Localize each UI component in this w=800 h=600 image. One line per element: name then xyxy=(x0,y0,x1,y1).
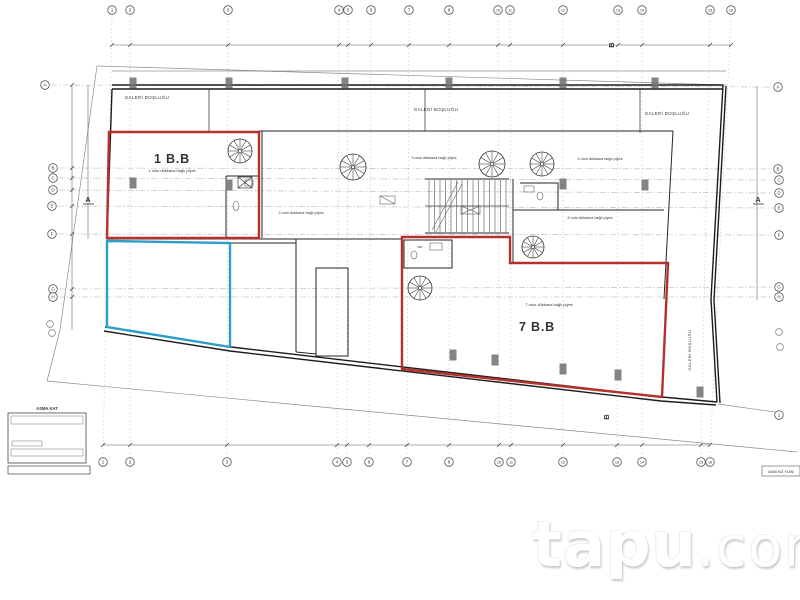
grid-bubble-label: E xyxy=(777,206,780,211)
grid-bubble-label: 2 xyxy=(129,460,132,465)
grid-bubble-label: 3 xyxy=(227,8,230,13)
column xyxy=(642,180,649,191)
room5-label: 5 nolu dükkana bağlı piyes xyxy=(568,216,613,220)
title-block-heading: ASMA KAT xyxy=(36,406,58,411)
grid-bubble xyxy=(776,329,783,336)
grid-bubble-label: 1 xyxy=(102,460,105,465)
grid-bubble-label: 13 xyxy=(616,8,620,13)
grid-bubble-label: 16 xyxy=(729,8,733,13)
column xyxy=(652,78,659,89)
grid-line-vertical xyxy=(369,16,371,454)
grid-bubble-label: F xyxy=(778,233,781,238)
spiral-stair-icon xyxy=(228,139,252,163)
column xyxy=(226,180,233,191)
grid-bubble-label: 5 xyxy=(346,460,349,465)
grid-bubble xyxy=(47,321,54,328)
spiral-stair-icon xyxy=(479,151,505,177)
section-marker-a-left: A xyxy=(85,195,91,204)
grid-bubble-label: 6 xyxy=(370,8,373,13)
grid-bubble-label: G xyxy=(777,285,781,290)
grid-line-horizontal xyxy=(58,206,773,208)
unit-7bb-sublabel: 7 nolu dükkana bağlı piyes xyxy=(525,302,572,307)
grid-bubble xyxy=(777,344,784,351)
spiral-stair-icon xyxy=(408,276,432,300)
column xyxy=(450,350,457,361)
grid-bubble-label: 15 xyxy=(699,460,703,465)
unit-1bb-sublabel: 1 nolu dükkana bağlı piyes xyxy=(148,168,195,173)
grid-line-vertical xyxy=(510,16,511,454)
section-markers: A A B B xyxy=(83,42,764,420)
column xyxy=(446,78,453,89)
spiral-stair-icon xyxy=(340,154,366,180)
column xyxy=(342,78,349,89)
interior-walls xyxy=(107,89,673,356)
grid-line-vertical xyxy=(498,16,499,454)
grid-bubble-label: B xyxy=(51,166,54,171)
grid-line-vertical xyxy=(337,16,339,454)
grid-bubble-label: 1 xyxy=(111,8,114,13)
room2-label: 2 nolu dükkana bağlı piyes xyxy=(279,211,324,215)
grid-bubble-label: B xyxy=(776,167,779,172)
grid-bubble-label: 1 xyxy=(778,413,781,418)
grid-line-vertical xyxy=(407,16,409,454)
dimension-lines xyxy=(72,45,757,445)
column xyxy=(492,355,499,366)
grid-bubble-label: F xyxy=(51,232,54,237)
grid-bubble-label: 16 xyxy=(708,460,712,465)
column xyxy=(130,178,137,189)
grid-bubble-label: 7 xyxy=(408,8,411,13)
gallery-void-label-center: GALERİ BOŞLUĞU xyxy=(414,107,458,112)
column xyxy=(560,179,567,190)
grid-bubble-label: 8 xyxy=(448,8,451,13)
grid-line-horizontal xyxy=(59,190,773,193)
grid-bubble-label: 3 xyxy=(226,460,229,465)
wc-label: wc xyxy=(418,244,423,249)
spiral-stair-icon xyxy=(530,152,554,176)
grid-bubble xyxy=(49,330,56,337)
unit-7bb-outline xyxy=(402,237,668,397)
parcel-boundary xyxy=(47,66,797,452)
column xyxy=(560,364,567,375)
grid-bubble-label: H xyxy=(777,295,780,300)
grid-bubble-label: 12 xyxy=(561,8,565,13)
gallery-void-label-vertical: GALERİ BOŞLUĞU xyxy=(687,330,692,371)
room4-label: 4 nolu dükkana bağlı piyes xyxy=(578,157,623,161)
grid-bubble-label: 11 xyxy=(508,8,512,13)
grid-bubble-label: 15 xyxy=(708,8,712,13)
gallery-void-label-right: GALERİ BOŞLUĞU xyxy=(645,111,689,116)
grid-lines xyxy=(51,16,773,454)
unit-7bb-label: 7 B.B xyxy=(519,320,555,334)
grid-bubble-label: 4 xyxy=(336,460,339,465)
watermark-main: tapu xyxy=(532,508,697,581)
watermark-suffix: .com xyxy=(697,515,800,580)
tapu-watermark: tapu.com xyxy=(532,508,800,581)
title-block: ASMA KAT xyxy=(8,406,90,474)
grid-line-horizontal xyxy=(59,178,773,180)
drawing-name-label: ASMA KAT PLANI xyxy=(768,470,794,474)
grid-bubble-label: 4 xyxy=(338,8,341,13)
grid-bubble-label: E xyxy=(50,204,53,209)
column xyxy=(560,78,567,89)
section-marker-b-top: B xyxy=(607,42,616,48)
unit-1bb-label: 1 B.B xyxy=(154,152,190,166)
blue-region-outline xyxy=(107,241,230,347)
section-marker-b-bottom: B xyxy=(602,414,611,420)
grid-bubble-label: G xyxy=(51,287,55,292)
grid-bubble-label: 8 xyxy=(448,460,451,465)
grid-bubble-label: 7 xyxy=(406,460,409,465)
gallery-void-label-left: GALERİ BOŞLUĞU xyxy=(125,95,169,100)
drawing-name-box: ASMA KAT PLANI xyxy=(762,466,800,476)
grid-bubble-label: 12 xyxy=(561,460,565,465)
column xyxy=(615,370,622,381)
column xyxy=(697,387,704,398)
grid-bubble-label: H xyxy=(51,295,54,300)
grid-bubble-label: 6 xyxy=(368,460,371,465)
column xyxy=(226,78,233,89)
grid-line-horizontal xyxy=(58,234,773,235)
grid-bubble-label: 5 xyxy=(347,8,350,13)
spiral-stair-icon xyxy=(522,236,544,258)
grid-bubble-label: 2 xyxy=(129,8,132,13)
column xyxy=(130,78,137,89)
section-marker-a-right: A xyxy=(755,195,761,204)
room3-label: 3 nolu dükkana bağlı piyes xyxy=(412,156,457,160)
grid-bubble-label: 13 xyxy=(615,460,619,465)
grid-bubble-label: 11 xyxy=(509,460,513,465)
